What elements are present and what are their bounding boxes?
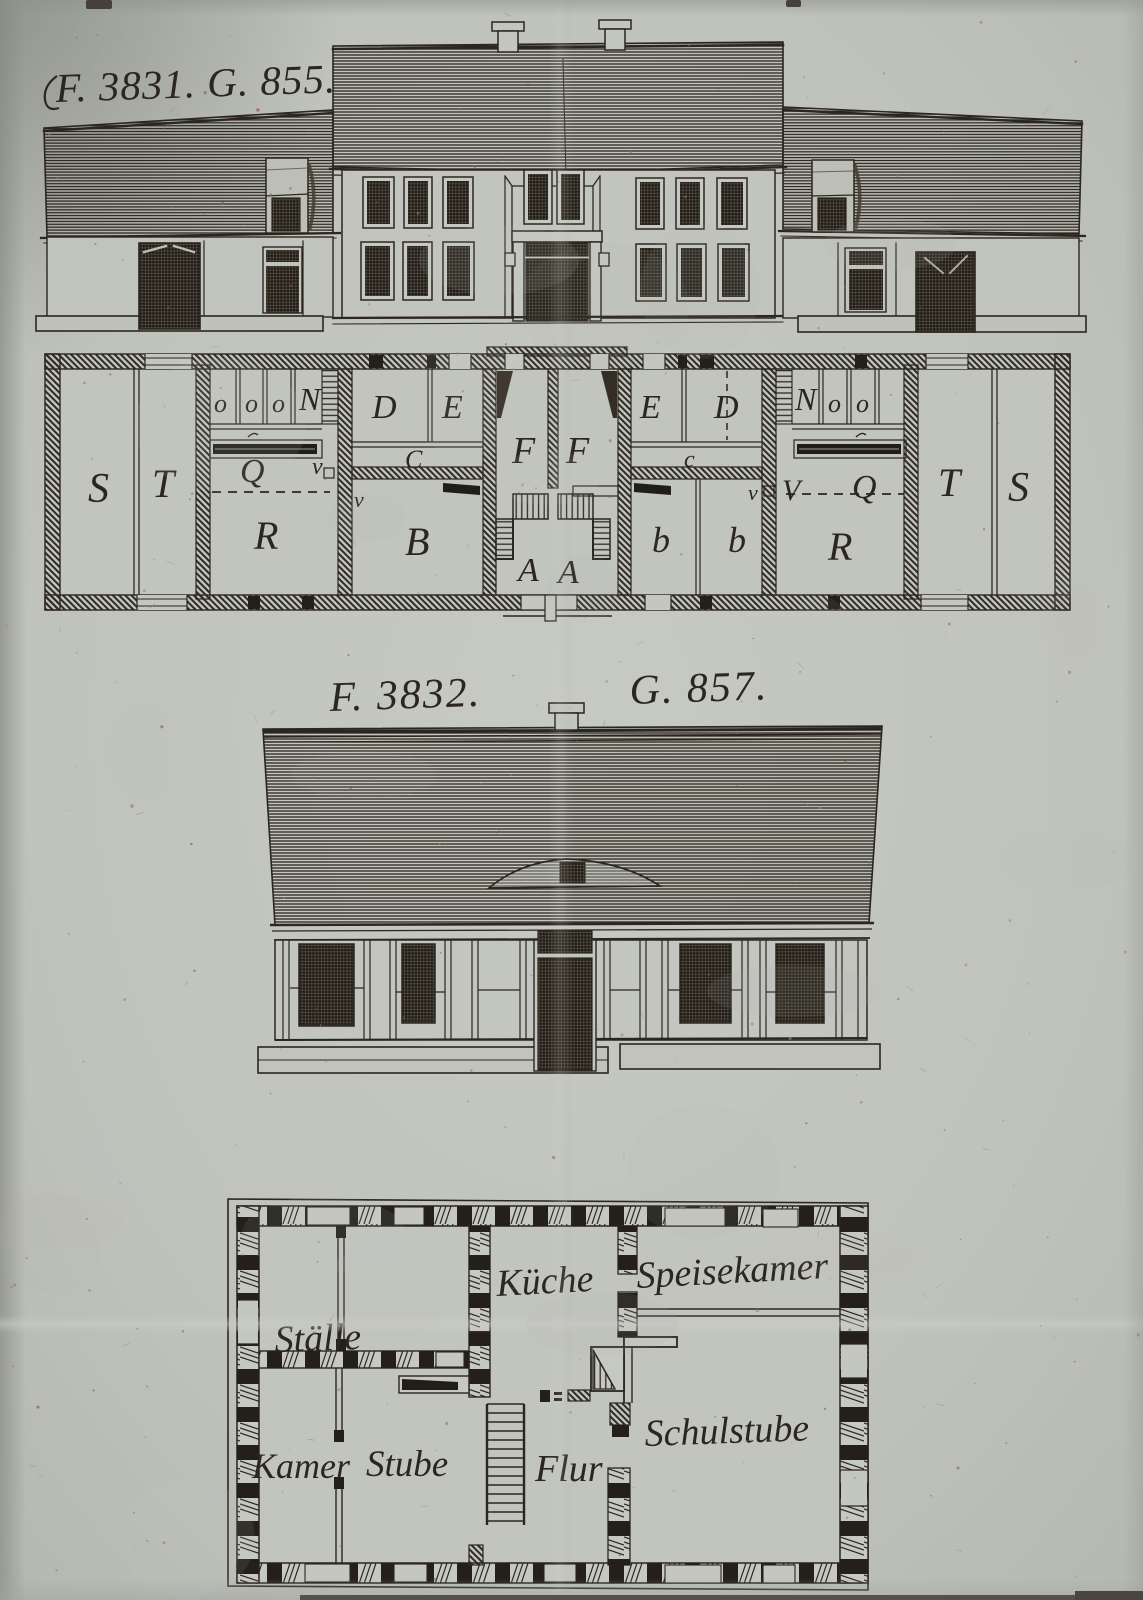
svg-text:D: D bbox=[371, 389, 397, 426]
svg-text:Q: Q bbox=[852, 469, 877, 506]
svg-text:b: b bbox=[728, 520, 746, 560]
svg-text:E: E bbox=[639, 389, 661, 426]
svg-text:b: b bbox=[652, 520, 670, 560]
svg-text:o: o bbox=[856, 389, 869, 418]
svg-text:Schulstube: Schulstube bbox=[644, 1407, 810, 1455]
svg-text:F. 3832.: F. 3832. bbox=[328, 670, 482, 721]
svg-text:T: T bbox=[938, 460, 963, 505]
svg-text:D: D bbox=[713, 389, 739, 426]
svg-text:N: N bbox=[794, 381, 818, 417]
svg-text:R: R bbox=[253, 513, 278, 558]
svg-text:Kamer: Kamer bbox=[251, 1446, 351, 1486]
svg-text:F. 3831. G. 855.: F. 3831. G. 855. bbox=[54, 55, 337, 111]
svg-text:G. 857.: G. 857. bbox=[629, 663, 769, 714]
svg-text:v: v bbox=[312, 454, 323, 480]
svg-text:o: o bbox=[828, 389, 841, 418]
svg-text:v: v bbox=[748, 480, 758, 505]
svg-text:A: A bbox=[516, 552, 539, 589]
svg-text:B: B bbox=[405, 519, 429, 564]
svg-text:S: S bbox=[1008, 465, 1029, 511]
svg-text:S: S bbox=[88, 466, 109, 512]
svg-text:R: R bbox=[827, 524, 852, 569]
